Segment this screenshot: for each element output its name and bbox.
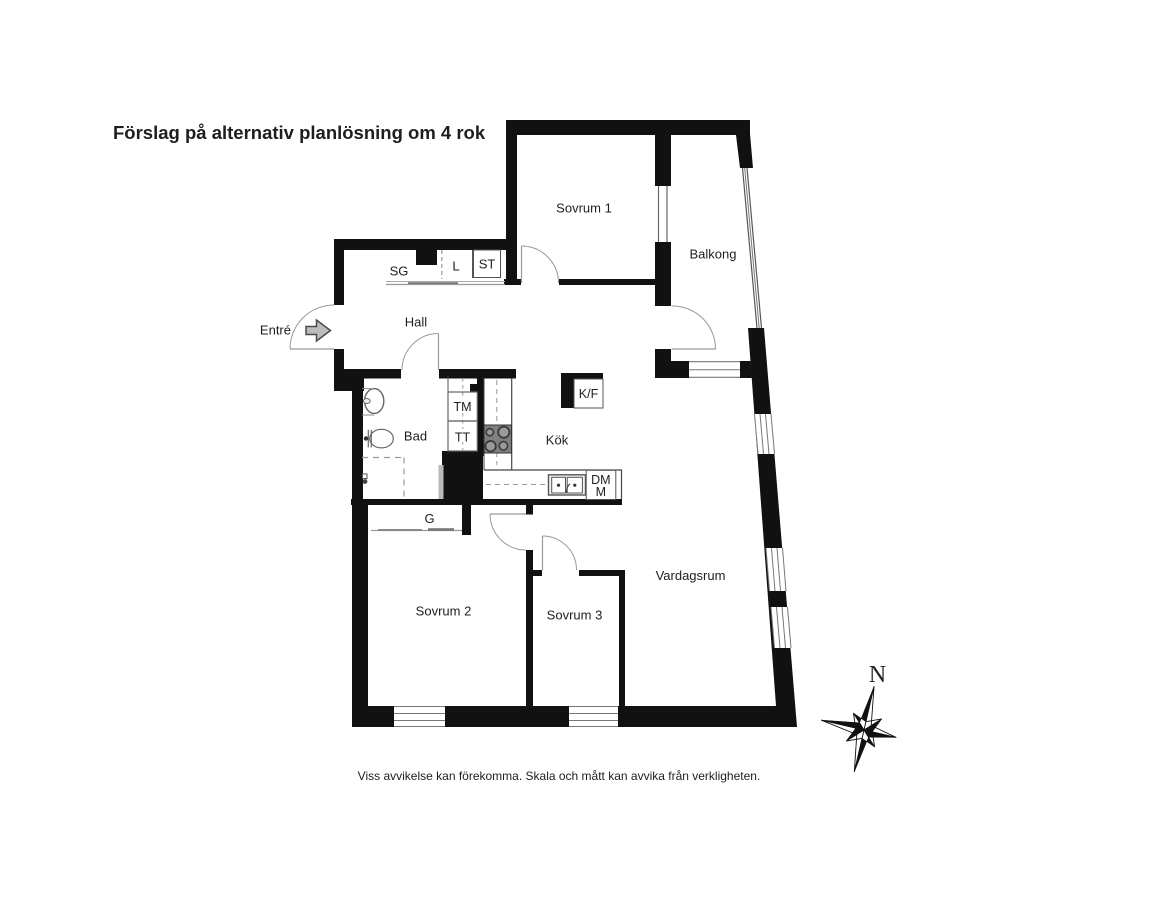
svg-text:N: N <box>869 662 886 688</box>
svg-text:Förslag på alternativ planlösn: Förslag på alternativ planlösning om 4 r… <box>113 122 486 143</box>
svg-text:G: G <box>424 511 434 526</box>
svg-text:TT: TT <box>455 431 471 445</box>
svg-text:Entré: Entré <box>260 323 291 338</box>
svg-text:Bad: Bad <box>404 429 427 444</box>
svg-text:SG: SG <box>390 264 409 279</box>
svg-text:Kök: Kök <box>546 433 569 448</box>
svg-text:ST: ST <box>479 257 496 272</box>
svg-text:Sovrum 3: Sovrum 3 <box>547 608 603 623</box>
svg-text:Vardagsrum: Vardagsrum <box>656 568 726 583</box>
svg-text:Sovrum 2: Sovrum 2 <box>416 604 472 619</box>
svg-text:Sovrum 1: Sovrum 1 <box>556 201 612 216</box>
svg-text:TM: TM <box>453 400 471 414</box>
svg-text:K/F: K/F <box>579 387 599 401</box>
svg-text:Viss avvikelse kan förekomma.: Viss avvikelse kan förekomma. Skala och … <box>358 769 761 783</box>
svg-text:Hall: Hall <box>405 315 428 330</box>
svg-text:M: M <box>596 485 606 499</box>
svg-text:Balkong: Balkong <box>690 247 737 262</box>
svg-text:L: L <box>452 259 459 274</box>
